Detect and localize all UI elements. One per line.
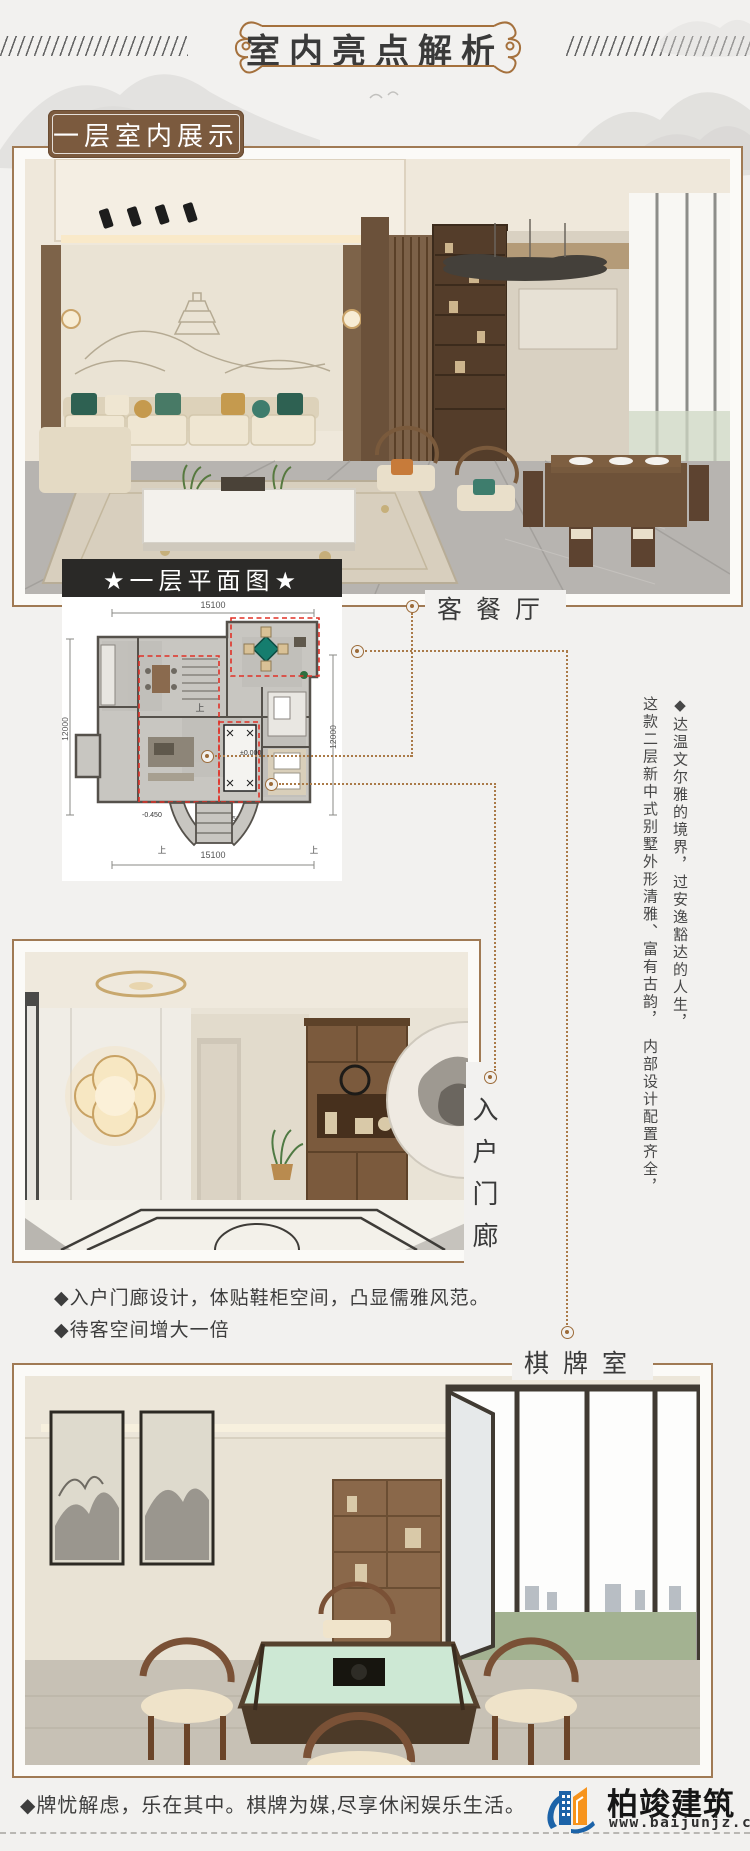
paragraph-line-2: 这款二层新中式别墅外形清雅、富有古韵， 内部设计配置齐全， [634, 696, 664, 1216]
svg-text:上: 上 [310, 845, 319, 855]
bullet-entrance-design: ◆入户门廊设计，体贴鞋柜空间，凸显儒雅风范。 [54, 1283, 490, 1310]
svg-text:12000: 12000 [62, 717, 70, 741]
mahjong-photo-frame [12, 1363, 713, 1778]
section-label: 一层室内展示 [48, 110, 244, 158]
logo-icon [543, 1783, 601, 1835]
section-label-text: 一层室内展示 [53, 116, 239, 153]
connector-dot [351, 645, 364, 658]
paragraph-line-1: ◆达温文尔雅的境界，过安逸豁达的人生， [664, 696, 694, 1216]
floor-plan-drawing: 15100 15100 12000 12000 上 [62, 597, 342, 881]
brand-logo: 柏竣建筑 www.baijunjz.com [543, 1779, 743, 1837]
connector-entrance-h [279, 783, 496, 785]
connector-dot [201, 750, 214, 763]
connector-living-dining-v [411, 613, 413, 757]
connector-chess-v [566, 651, 568, 1325]
living-dining-photo-frame [12, 146, 743, 607]
label-chess-room: 棋牌室 [512, 1344, 653, 1380]
label-entrance: 入户门廊 [464, 1088, 505, 1272]
bullet-guest-space: ◆待客空间增大一倍 [54, 1315, 230, 1342]
svg-text:12000: 12000 [328, 725, 338, 749]
entrance-photo [25, 952, 468, 1250]
svg-text:上: 上 [158, 845, 167, 855]
entrance-photo-frame [12, 939, 481, 1263]
label-living-dining: 客餐厅 [425, 590, 566, 626]
living-dining-photo [25, 159, 730, 594]
floorplan-card: 15100 15100 12000 12000 上 [62, 597, 342, 881]
svg-text:-0.450: -0.450 [142, 812, 162, 819]
logo-url: www.baijunjz.com [609, 1815, 750, 1831]
connector-living-dining-h [208, 755, 412, 757]
caption-mahjong: ◆牌忧解虑，乐在其中。棋牌为媒,尽享休闲娱乐生活。 [20, 1789, 526, 1818]
description-paragraph: ◆达温文尔雅的境界，过安逸豁达的人生， 这款二层新中式别墅外形清雅、富有古韵， … [606, 696, 694, 1216]
floorplan-title: ★一层平面图★ [103, 561, 301, 596]
floorplan-title-bar: ★一层平面图★ [62, 559, 342, 597]
connector-dot [484, 1071, 497, 1084]
connector-chess-h [365, 650, 568, 652]
connector-entrance-v [494, 783, 496, 1071]
connector-dot [265, 778, 278, 791]
svg-text:15100: 15100 [200, 850, 225, 860]
connector-dot [406, 600, 419, 613]
connector-dot [561, 1326, 574, 1339]
svg-text:上: 上 [195, 703, 204, 713]
header-ornament-frame [228, 14, 528, 78]
svg-text:15100: 15100 [200, 600, 225, 610]
mahjong-room-photo [25, 1376, 700, 1765]
poster-page: 室内亮点解析 一层室内展示 [0, 0, 750, 1851]
